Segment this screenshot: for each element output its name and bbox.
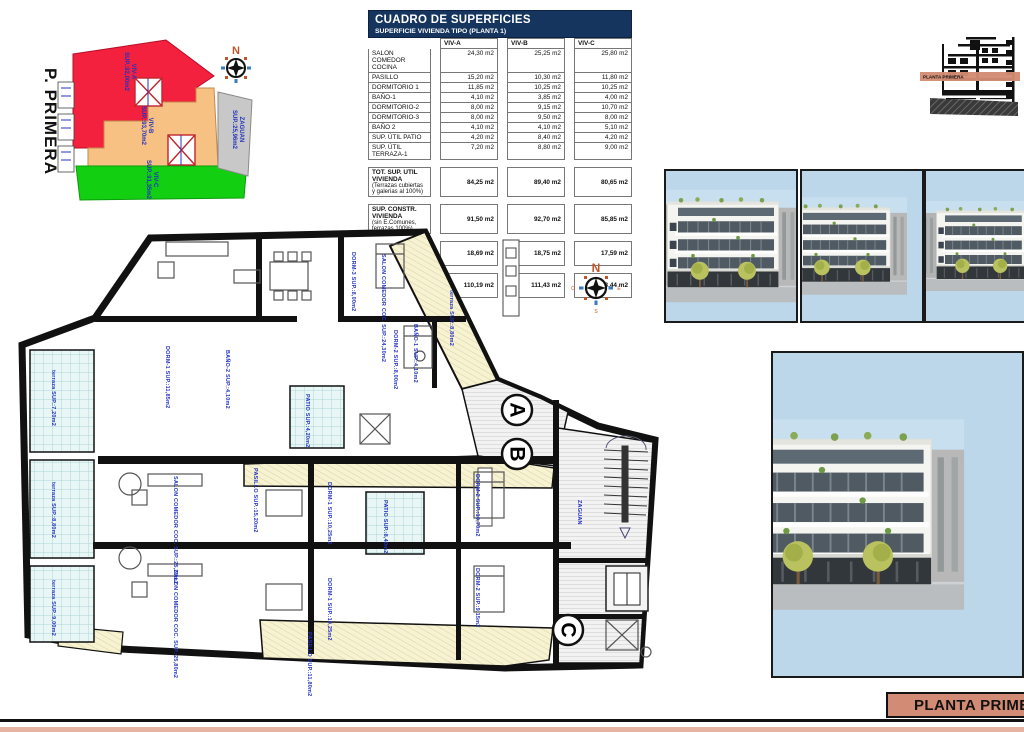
keyplan: P. PRIMERA N — [18, 26, 274, 212]
room-label: DORM-3 SUP.:8,00m2 — [350, 252, 356, 311]
section-structure — [942, 37, 1015, 102]
room-label: terraza SUP.:8,80m2 — [50, 482, 56, 538]
surface-table-header: CUADRO DE SUPERFICIES SUPERFICIE VIVIEND… — [368, 10, 632, 38]
room-label: BAÑO-1 SUP.:4,10m2 — [412, 324, 418, 383]
table-row: SUP. ÚTIL TERRAZA-17,20 m28,80 m29,00 m2 — [368, 143, 632, 160]
room-label: PASILLO SUP.:15,20m2 — [252, 468, 258, 533]
sheet-title: PLANTA PRIMERA — [914, 697, 1024, 714]
unit-marker-b: B — [502, 439, 532, 469]
room-label: DORM-2 SUP.:8,00m2 — [392, 330, 398, 389]
compass-icon: N — [221, 45, 251, 83]
footer-strip — [0, 727, 1024, 732]
table-row: BAÑO 24,10 m24,10 m25,10 m2 — [368, 123, 632, 133]
svg-text:B: B — [506, 446, 529, 461]
room-label: SALON COMEDOR COC. SUP.:24,30m2 — [380, 254, 386, 362]
room-label: PATIO SUP.:4,20m2 — [304, 394, 310, 448]
svg-text:C: C — [557, 622, 580, 637]
room-label: terraza SUP.:7,20m2 — [50, 370, 56, 426]
room-label: terraza SUP.:9,00m2 — [50, 580, 56, 636]
surface-table-title: CUADRO DE SUPERFICIES — [375, 14, 625, 26]
table-row: PASILLO15,20 m210,30 m211,80 m2 — [368, 73, 632, 83]
compass-icon: N O E S — [571, 261, 621, 315]
table-row: DORMITORIO-28,00 m29,15 m210,70 m2 — [368, 103, 632, 113]
render-photo-1 — [664, 169, 798, 323]
room-label: DORM-1 SUP.:10,25m2 — [326, 578, 332, 641]
terraza-b — [30, 460, 94, 558]
building-section-drawing: PLANTA PRIMERA — [918, 20, 1024, 126]
terrace-band-bottom — [260, 620, 553, 666]
table-summary-row: TOT. SUP. UTIL VIVIENDA(Terrazas cubiert… — [368, 167, 632, 197]
room-label: DORM-2 SUP.:10,70m2 — [474, 474, 480, 537]
sheet-title-block: PLANTA PRIMERA — [886, 692, 1024, 718]
svg-text:S: S — [594, 309, 598, 315]
room-label: SALON COMEDOR COC. SUP.:25,25m2 — [172, 476, 178, 584]
keyplan-label-zaguan: ZAGUANSUP.:25,96m2 — [231, 110, 244, 149]
render-photo-3 — [924, 169, 1024, 323]
keyplan-label-viv-a: VIV-ASUP.:92,00m2 — [123, 52, 136, 91]
room-label: terraza SUP.:8,80m2 — [448, 290, 454, 346]
table-row: SALON COMEDOR COCINA24,30 m225,25 m225,8… — [368, 49, 632, 73]
table-column-header: VIV-A VIV-B VIV-C — [368, 38, 632, 49]
terraza-a — [30, 350, 94, 452]
unit-marker-c: C — [553, 615, 583, 645]
table-row: DORMITORIO 111,85 m210,25 m210,25 m2 — [368, 83, 632, 93]
floor-plan-drawing: A B C N O E S — [8, 228, 660, 688]
table-row: SUP. ÚTIL PATIO4,20 m28,40 m24,20 m2 — [368, 133, 632, 143]
keyplan-label-viv-c: VIV-CSUP.:91,35m2 — [145, 160, 158, 199]
svg-text:A: A — [506, 402, 529, 417]
patio-1 — [290, 386, 344, 448]
render-photo-large — [771, 351, 1024, 678]
svg-text:E: E — [617, 286, 621, 292]
elevator — [606, 566, 648, 611]
room-label: BAÑO-2 SUP.:4,10m2 — [224, 350, 230, 409]
section-band-label: PLANTA PRIMERA — [923, 75, 964, 80]
render-photo-2 — [800, 169, 924, 323]
room-label: DORM-1 SUP.:11,85m2 — [164, 346, 170, 408]
room-label: DORM-2 SUP.:9,15m2 — [474, 568, 480, 627]
svg-text:N: N — [232, 45, 240, 57]
table-row: BAÑO-14,10 m23,85 m24,00 m2 — [368, 93, 632, 103]
room-label: PATIO SUP.:8,40m2 — [382, 500, 388, 554]
unit-marker-a: A — [502, 395, 532, 425]
keyplan-region-viv-c — [76, 166, 246, 200]
svg-text:O: O — [571, 286, 575, 292]
svg-text:N: N — [592, 261, 601, 275]
section-ground — [930, 98, 1018, 116]
table-row: DORMITORIO-38,00 m29,50 m28,00 m2 — [368, 113, 632, 123]
drawing-sheet: P. PRIMERA N — [0, 0, 1024, 732]
keyplan-title: P. PRIMERA — [40, 68, 60, 175]
room-label: DORM-1 SUP.:10,25m2 — [326, 482, 332, 545]
terraza-c — [30, 566, 94, 642]
footer-rule — [0, 719, 1024, 722]
keyplan-label-viv-b: VIV-BSUP.:93,70m2 — [140, 106, 153, 145]
room-label: ZAGUAN — [576, 500, 582, 525]
room-label: PASILLO SUP.:11,80m2 — [306, 632, 312, 696]
surface-table-subtitle: SUPERFICIE VIVIENDA TIPO (PLANTA 1) — [375, 28, 625, 35]
floor-plan: P. PRIMERA — [8, 228, 660, 688]
room-label: SALON COMEDOR COC. SUP.:25,80m2 — [172, 570, 178, 678]
